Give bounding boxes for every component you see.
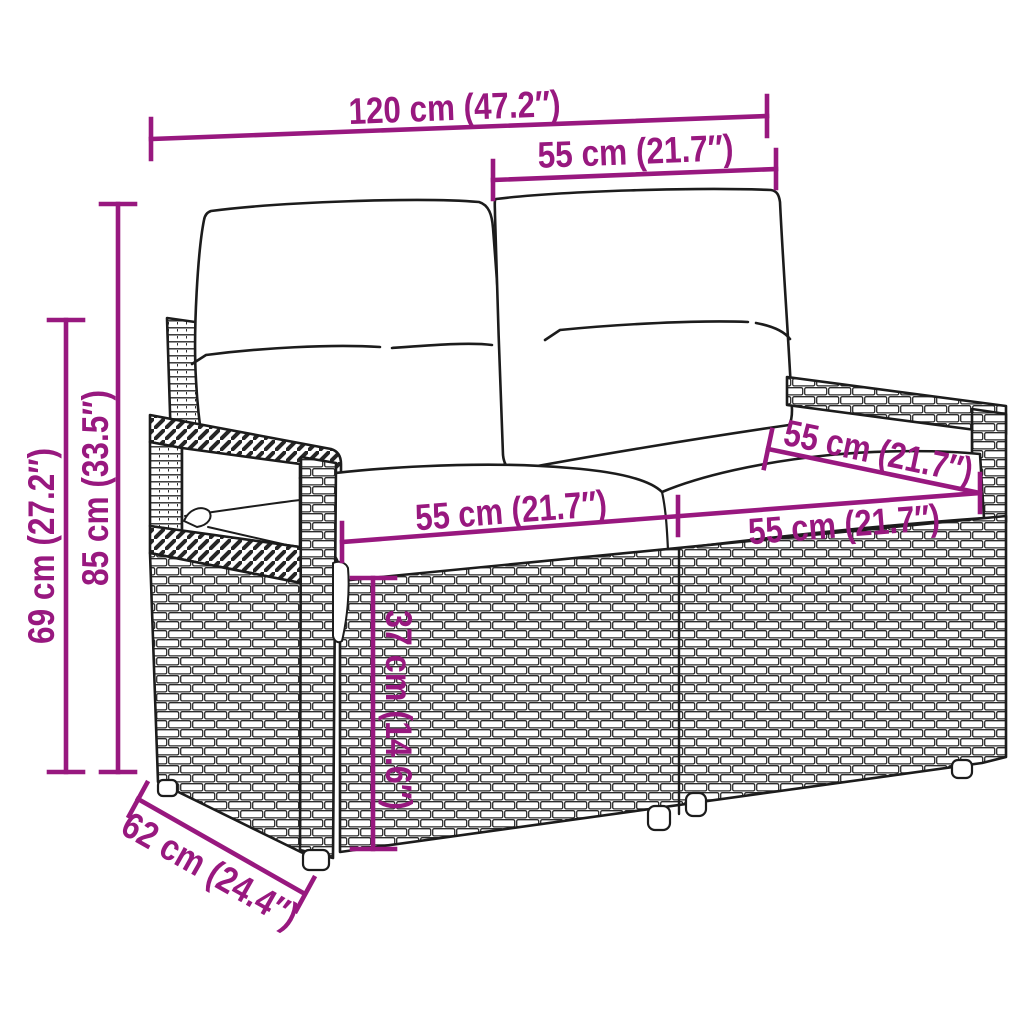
- back-cushion-right: [495, 189, 792, 470]
- product-dimension-image: 120 cm (47.2″) 55 cm (21.7″) 85 cm (33.5…: [0, 0, 1024, 1024]
- base-left-side: [150, 553, 311, 857]
- foot-middle-back: [686, 793, 706, 816]
- dimension-label-total-height: 85 cm (33.5″): [75, 390, 116, 586]
- dimension-armrest-height: 69 cm (27.2″): [21, 320, 83, 772]
- left-arm-side-panel: [150, 442, 182, 531]
- dimension-label-seat-height: 37 cm (14.6″): [378, 610, 419, 810]
- foot-back-left: [158, 780, 177, 796]
- foot-front-left: [303, 850, 329, 870]
- foot-right: [952, 760, 972, 778]
- foot-middle-front: [648, 806, 670, 830]
- left-arm-front-post: [300, 457, 336, 858]
- dimension-label-backrest-width: 55 cm (21.7″): [537, 127, 734, 176]
- diagram-canvas: 120 cm (47.2″) 55 cm (21.7″) 85 cm (33.5…: [0, 0, 1024, 1024]
- dimension-total-height: 85 cm (33.5″): [75, 204, 135, 772]
- dimension-label-armrest-height: 69 cm (27.2″): [21, 448, 62, 644]
- dimension-label-total-width: 120 cm (47.2″): [348, 83, 561, 132]
